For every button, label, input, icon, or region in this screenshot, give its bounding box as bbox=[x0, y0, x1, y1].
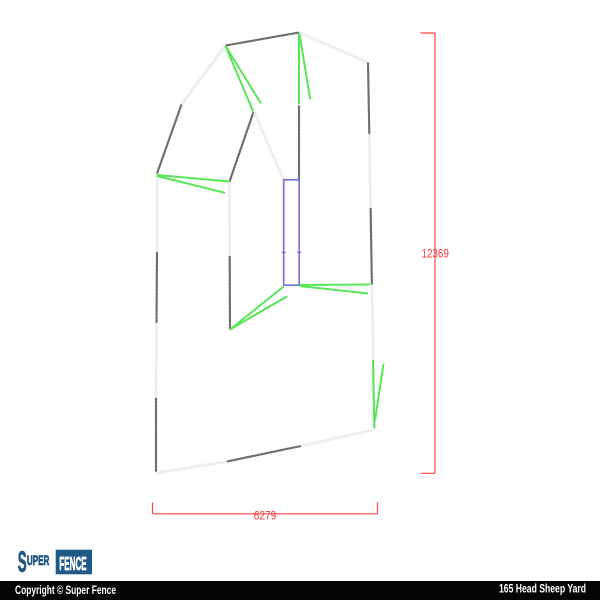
svg-text:FENCE: FENCE bbox=[59, 553, 86, 574]
svg-text:UPER: UPER bbox=[27, 552, 49, 568]
svg-text:Copyright © Super Fence: Copyright © Super Fence bbox=[15, 585, 116, 597]
svg-text:165 Head Sheep Yard: 165 Head Sheep Yard bbox=[499, 584, 586, 596]
svg-text:S: S bbox=[18, 547, 27, 579]
svg-text:12369: 12369 bbox=[421, 248, 449, 260]
svg-text:6279: 6279 bbox=[254, 510, 277, 522]
